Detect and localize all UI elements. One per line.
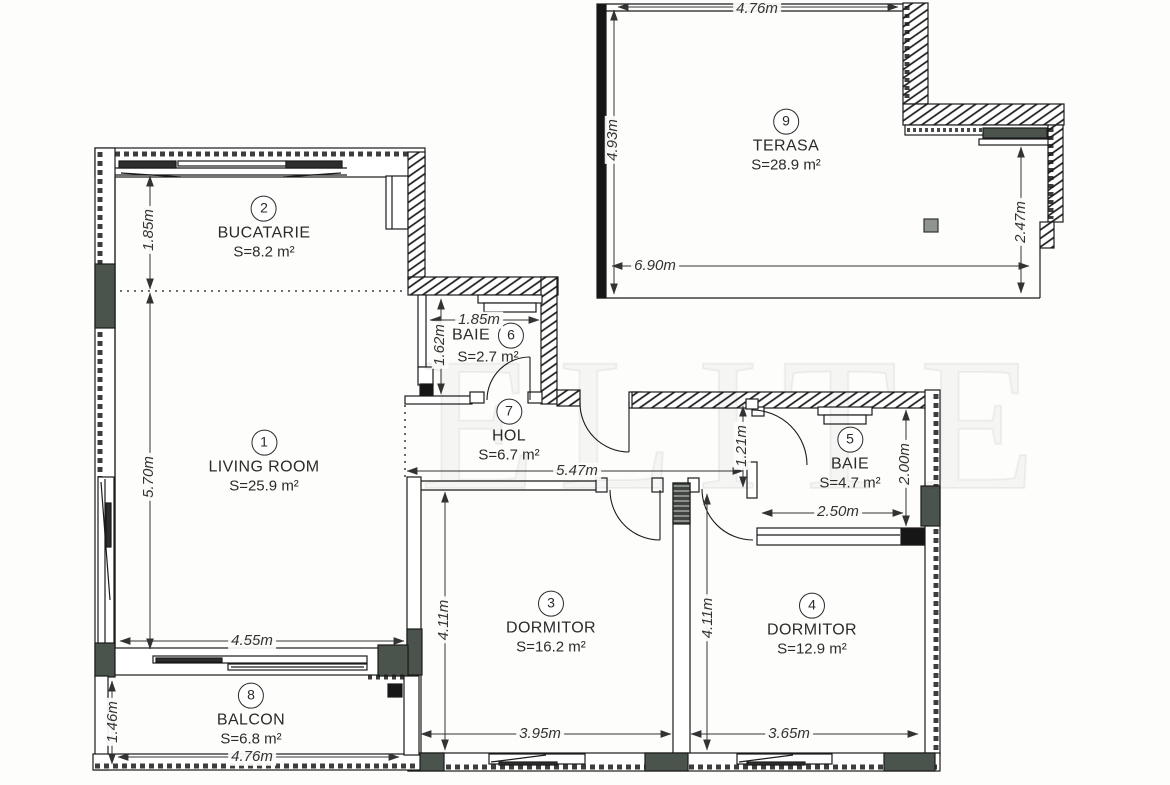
room-name: BAIE [819, 455, 880, 475]
room-area: S=2.7 m² [452, 349, 524, 368]
room-name: HOL [478, 427, 539, 447]
bedrooms-structure [407, 477, 940, 771]
room-name: BALCON [217, 711, 285, 731]
room-number-badge: 7 [496, 399, 522, 425]
room-area: S=25.9 m² [208, 478, 319, 497]
room-area: S=28.9 m² [751, 157, 821, 176]
room-name: TERASA [751, 137, 821, 157]
dim-dorm3-height: 4.11m [436, 597, 453, 644]
dim-balcon-height: 1.46m [105, 698, 122, 746]
room-label-baie-5: 5 BAIE S=4.7 m² [819, 427, 880, 494]
dim-baie5-height: 2.00m [897, 440, 914, 488]
dim-balcon-width: 4.76m [228, 749, 276, 766]
room-area: S=8.2 m² [218, 244, 311, 263]
dim-dorm4-width: 3.65m [765, 726, 813, 743]
room-area: S=4.7 m² [819, 475, 880, 494]
floorplan-drawing [0, 0, 1170, 785]
room-area: S=16.2 m² [506, 639, 596, 658]
room-label-hol: 7 HOL S=6.7 m² [478, 399, 539, 466]
dim-dorm3-width: 3.95m [516, 726, 564, 743]
room-label-dormitor-4: 4 DORMITOR S=12.9 m² [767, 593, 857, 660]
room-label-living: 1 LIVING ROOM S=25.9 m² [208, 430, 319, 497]
dim-baie6-width: 1.85m [455, 312, 503, 329]
room-area: S=12.9 m² [767, 641, 857, 660]
room-name: BAIE [452, 326, 490, 346]
room-number-badge: 3 [538, 591, 564, 617]
dim-kitchen-depth: 1.85m [141, 206, 158, 254]
room-number-badge: 8 [238, 683, 264, 709]
room-number-badge: 2 [251, 196, 277, 222]
room-number-badge: 9 [773, 109, 799, 135]
dim-baie5-width: 2.50m [814, 504, 862, 521]
dim-terasa-bottom: 6.90m [631, 258, 679, 275]
room-number-badge: 5 [837, 427, 863, 453]
dim-baie6-height: 1.62m [432, 321, 449, 369]
dim-terasa-top: 4.76m [733, 1, 781, 18]
dim-terasa-left: 4.93m [605, 116, 622, 164]
dim-living-height: 5.70m [141, 453, 158, 501]
dim-hol-width: 5.47m [553, 463, 601, 480]
room-label-dormitor-3: 3 DORMITOR S=16.2 m² [506, 591, 596, 658]
room-name: BUCATARIE [218, 224, 311, 244]
room-area: S=6.8 m² [217, 731, 285, 750]
room-label-balcon: 8 BALCON S=6.8 m² [217, 683, 285, 750]
room-name: DORMITOR [767, 621, 857, 641]
room-name: DORMITOR [506, 619, 596, 639]
dim-dorm4-height: 4.11m [700, 595, 717, 642]
dim-living-width: 4.55m [228, 633, 276, 650]
dim-terasa-right: 2.47m [1013, 198, 1030, 246]
room-name: LIVING ROOM [208, 458, 319, 478]
room-area: S=6.7 m² [478, 447, 539, 466]
room-label-bucatarie: 2 BUCATARIE S=8.2 m² [218, 196, 311, 263]
dim-baie5-offset: 1.21m [734, 422, 751, 470]
room-label-terasa: 9 TERASA S=28.9 m² [751, 109, 821, 176]
floor-plan-page: ELITE 1 LIVING ROOM S=25.9 m² 2 BUCATARI… [0, 0, 1170, 785]
room-number-badge: 1 [251, 430, 277, 456]
room-number-badge: 4 [799, 593, 825, 619]
room-label-baie-6: BAIE 6 S=2.7 m² [452, 323, 524, 368]
terasa-structure [597, 3, 1064, 298]
